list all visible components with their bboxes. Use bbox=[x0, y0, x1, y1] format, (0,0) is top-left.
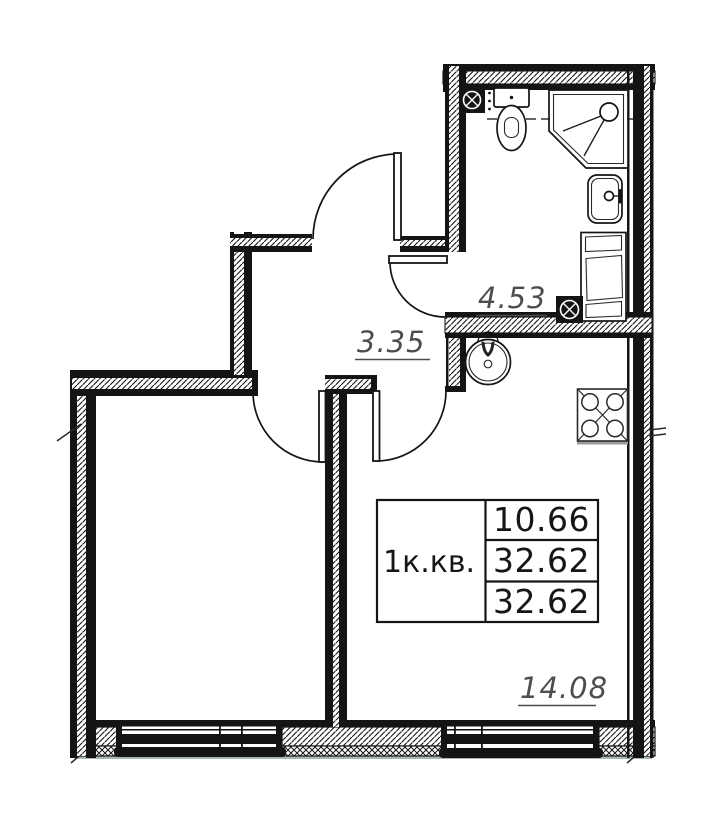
wall-face-inner bbox=[445, 333, 652, 338]
wall-face-outer bbox=[70, 370, 253, 378]
washbasin bbox=[588, 175, 623, 223]
washing-machine-body bbox=[581, 233, 626, 322]
wall-face-inner bbox=[70, 389, 255, 396]
toilet-button bbox=[510, 96, 513, 99]
wall-bottom-middle-segment bbox=[282, 720, 443, 756]
vent-fan-icon bbox=[459, 87, 491, 113]
apartment-info-table: 1к.кв. 10.66 32.62 32.62 bbox=[377, 500, 598, 622]
stove-burner bbox=[582, 394, 598, 410]
washing-machine bbox=[581, 233, 626, 322]
window-sill bbox=[439, 748, 603, 758]
stove bbox=[577, 389, 628, 445]
wall-hatch bbox=[325, 379, 377, 389]
wall-hatch bbox=[72, 378, 253, 389]
vent-fan-icon-2 bbox=[556, 296, 583, 323]
wall-right-exterior bbox=[627, 64, 654, 758]
window-jamb-left bbox=[441, 720, 447, 749]
wall-face-outer bbox=[230, 232, 234, 375]
wall-entrance-left bbox=[230, 234, 312, 252]
wall-hatch bbox=[333, 394, 339, 727]
living-room-door-arc bbox=[377, 391, 446, 461]
bathroom-door-arc bbox=[390, 263, 445, 317]
apartment-type-label: 1к.кв. bbox=[383, 545, 475, 580]
living-area-value: 32.62 bbox=[493, 541, 590, 580]
window-glass-line bbox=[118, 729, 282, 731]
bedroom-door bbox=[253, 391, 326, 462]
wall-hatch bbox=[449, 66, 459, 252]
wall-face-outer bbox=[445, 66, 449, 252]
wall-core bbox=[633, 64, 644, 758]
wall-face-outer bbox=[325, 375, 377, 379]
window-mullion bbox=[481, 720, 483, 748]
window-mullion bbox=[454, 720, 456, 748]
bathroom-door-leaf bbox=[389, 256, 447, 263]
wall-bedroom-top bbox=[70, 370, 258, 396]
living-room-door-leaf bbox=[373, 391, 380, 461]
wall-divider-header bbox=[325, 375, 377, 394]
floor-plan-canvas: 4.53 3.35 14.08 1к.кв. 10.66 32.62 32.62 bbox=[0, 0, 718, 834]
window-jamb-right bbox=[276, 720, 282, 749]
kitchen-sink-rim bbox=[466, 340, 511, 385]
room-area-value: 10.66 bbox=[493, 500, 590, 539]
wall-bedroom-divider bbox=[325, 394, 347, 727]
wall-face-inner bbox=[230, 246, 312, 252]
hallway-area-label: 3.35 bbox=[357, 325, 426, 359]
living-room-area: 14.08 bbox=[518, 671, 608, 706]
total-area-value: 32.62 bbox=[493, 582, 590, 621]
floor-plan-drawing: 4.53 3.35 14.08 1к.кв. 10.66 32.62 32.62 bbox=[0, 0, 718, 834]
wall-face-inner bbox=[86, 370, 96, 758]
wall-hatch bbox=[282, 727, 443, 746]
bathroom-door bbox=[389, 256, 447, 317]
window-inner-line bbox=[118, 720, 282, 727]
living-room-door bbox=[373, 391, 446, 461]
shower-tray-outer bbox=[549, 90, 628, 168]
wall-face-inner bbox=[325, 389, 377, 394]
kitchen-sink bbox=[466, 332, 511, 385]
wall-hallway-left bbox=[230, 232, 252, 375]
entrance-door-arc bbox=[313, 154, 398, 239]
wall-hatch bbox=[77, 372, 86, 756]
washbasin-faucet-handle bbox=[619, 189, 623, 204]
bedroom-door-leaf bbox=[319, 391, 326, 462]
wall-kitchen-stub bbox=[445, 338, 466, 392]
shower-head bbox=[600, 103, 618, 121]
window-frame-band bbox=[118, 734, 282, 744]
window-sill bbox=[114, 747, 286, 757]
window-mullion bbox=[219, 720, 221, 748]
wall-hatch bbox=[234, 234, 244, 375]
wall-face-outer bbox=[230, 234, 312, 238]
wall-hatch bbox=[644, 66, 650, 756]
vent-dot bbox=[488, 100, 491, 103]
wall-hatch bbox=[230, 238, 312, 246]
wall-face-outer bbox=[650, 64, 654, 758]
hallway-area: 3.35 bbox=[355, 325, 430, 360]
entrance-door bbox=[313, 153, 401, 240]
window-mullion bbox=[241, 720, 243, 748]
wall-face bbox=[443, 64, 655, 71]
washbasin-faucet bbox=[605, 192, 614, 201]
bathroom-area-label: 4.53 bbox=[478, 281, 547, 315]
window-jamb-left bbox=[116, 720, 122, 749]
window-inner-line bbox=[443, 720, 599, 727]
section-marks bbox=[57, 424, 666, 441]
vent-dot bbox=[488, 92, 491, 95]
bedroom-door-arc bbox=[253, 392, 323, 462]
wall-face-inner bbox=[244, 232, 252, 375]
bedroom-window bbox=[114, 720, 286, 757]
bathroom-area: 4.53 bbox=[476, 281, 547, 316]
toilet-bowl bbox=[497, 106, 526, 151]
toilet bbox=[487, 88, 536, 151]
living-room-area-label: 14.08 bbox=[520, 671, 608, 705]
stove-burner bbox=[607, 420, 623, 436]
stove-burner bbox=[582, 420, 598, 436]
wall-face bbox=[282, 720, 443, 727]
wall-face-right bbox=[339, 394, 347, 727]
shower-cabin bbox=[541, 90, 636, 168]
living-room-window bbox=[439, 720, 603, 758]
wall-crosshatch bbox=[282, 746, 443, 756]
window-glass-line bbox=[443, 729, 599, 731]
window-jamb-right bbox=[593, 720, 599, 749]
wall-face-outer bbox=[446, 338, 449, 388]
wall-hatch bbox=[449, 338, 460, 388]
entrance-door-leaf bbox=[394, 153, 401, 240]
stove-burner bbox=[607, 394, 623, 410]
wall-hatch bbox=[443, 71, 655, 84]
vent-dot bbox=[488, 108, 491, 111]
window-frame-band bbox=[443, 734, 599, 744]
wall-end-cap bbox=[445, 386, 466, 392]
